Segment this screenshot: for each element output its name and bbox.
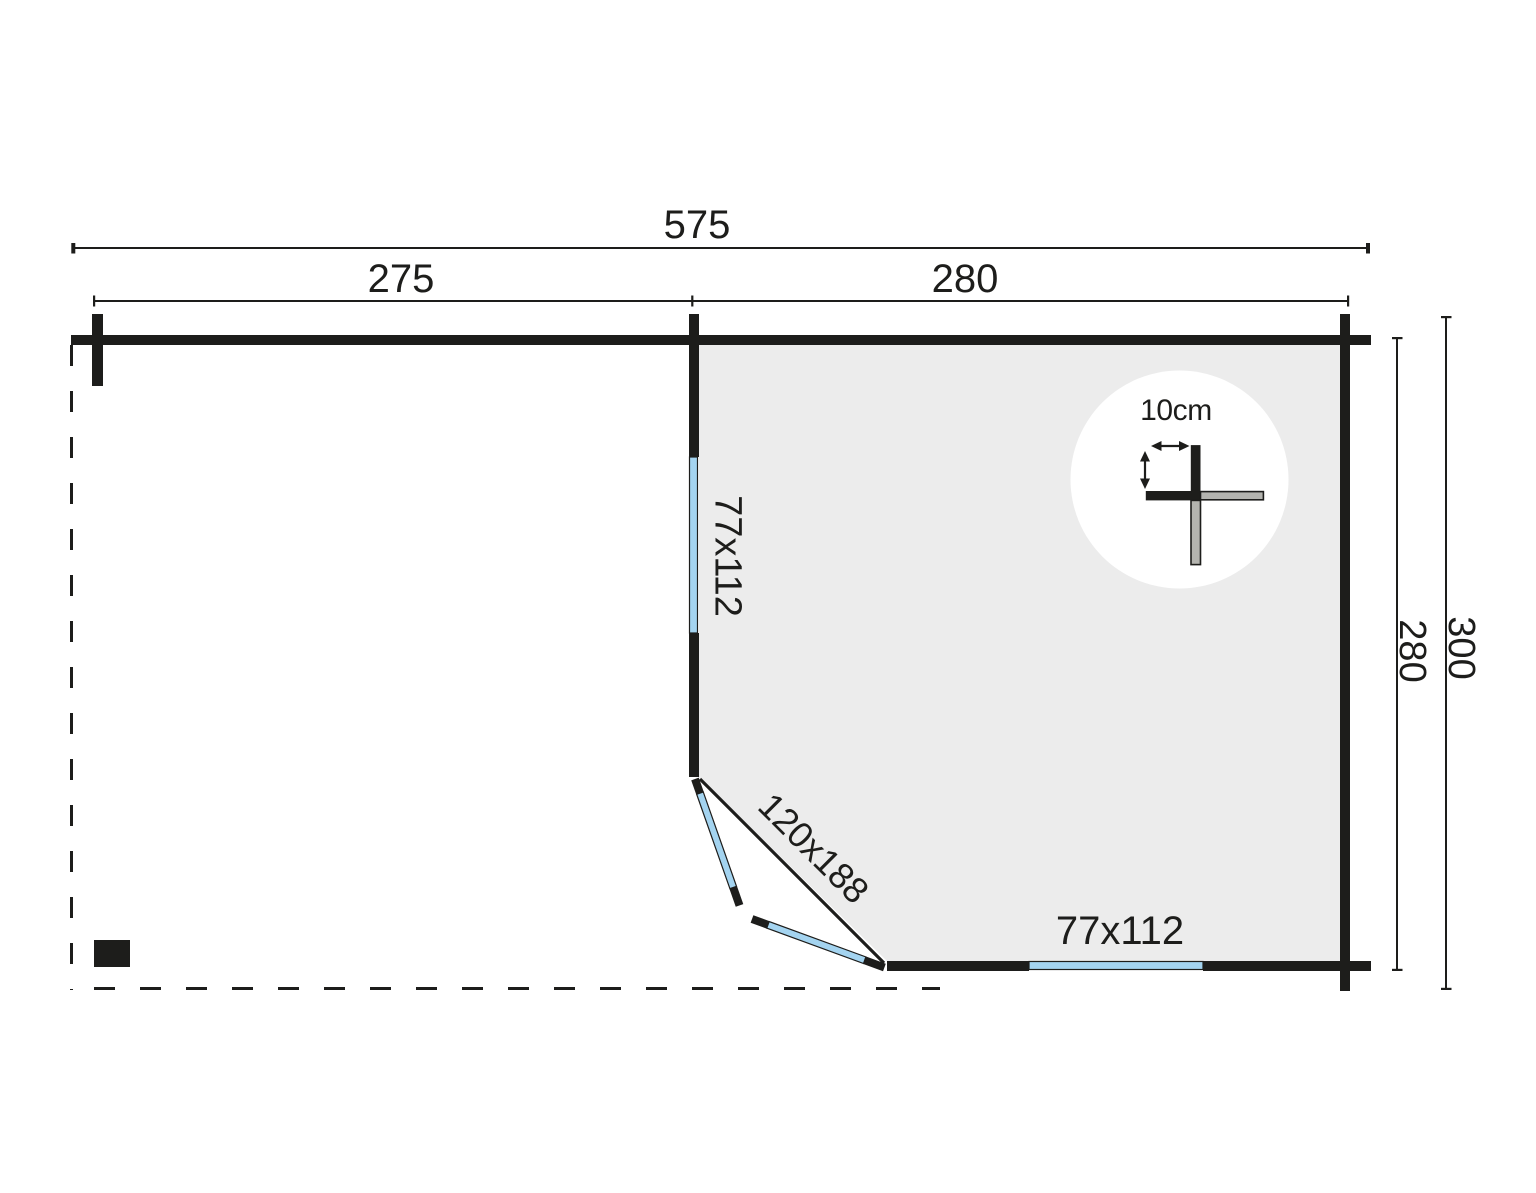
svg-text:575: 575 xyxy=(664,203,731,247)
svg-text:77x112: 77x112 xyxy=(707,495,749,617)
svg-text:280: 280 xyxy=(932,257,999,301)
svg-text:280: 280 xyxy=(1391,619,1433,682)
svg-text:10cm: 10cm xyxy=(1140,394,1212,427)
svg-text:275: 275 xyxy=(368,257,435,301)
svg-text:77x112: 77x112 xyxy=(1056,909,1184,953)
svg-text:300: 300 xyxy=(1440,616,1482,679)
